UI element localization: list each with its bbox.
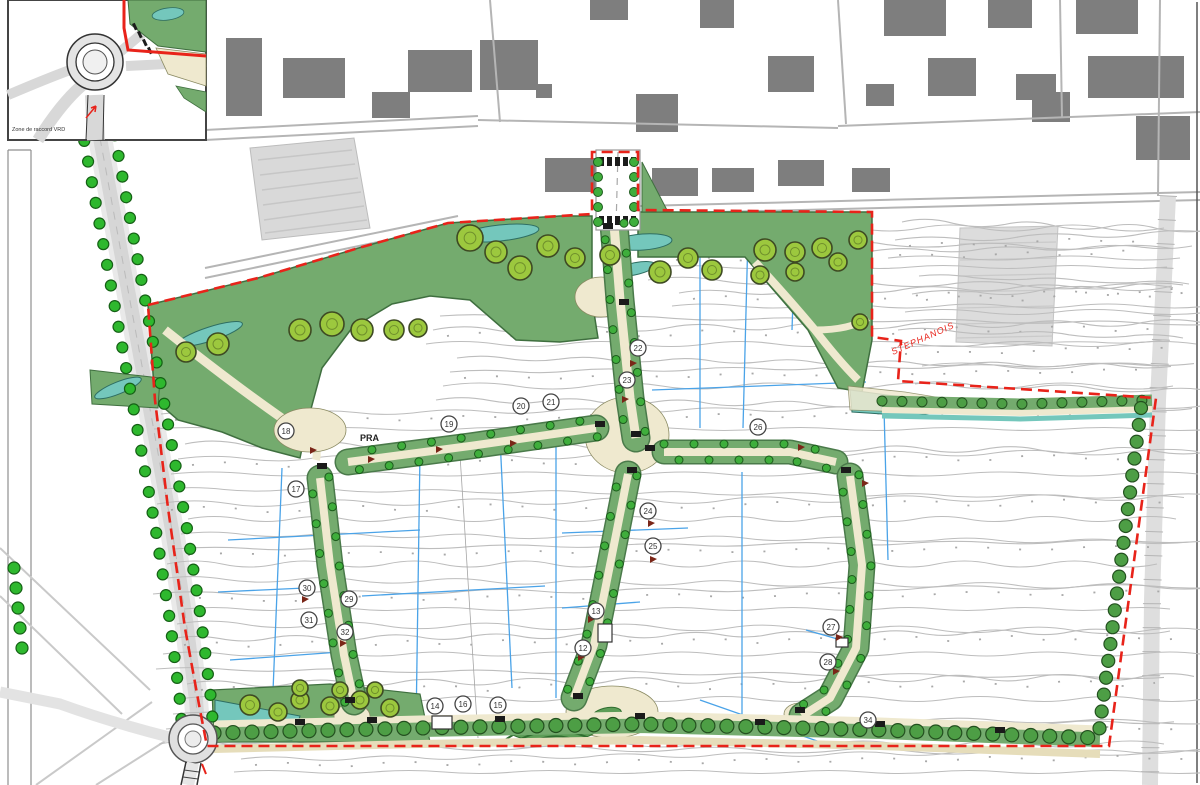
tree-symbol — [94, 218, 105, 229]
tree-symbol — [530, 719, 544, 733]
tree-symbol — [157, 569, 168, 580]
tree-symbol — [321, 723, 335, 737]
tree-symbol — [10, 582, 22, 594]
tree-symbol — [606, 512, 614, 520]
tree-symbol — [1097, 688, 1110, 701]
arrow-symbol — [862, 480, 869, 487]
road-mark — [603, 223, 613, 229]
tree-symbol — [620, 219, 628, 227]
tree-symbol — [445, 454, 453, 462]
building — [1076, 0, 1138, 34]
tree-symbol — [1037, 398, 1047, 408]
inset-caption: Zone de raccord VRD — [12, 127, 65, 133]
canopy-tree — [600, 245, 620, 265]
tree-symbol — [504, 446, 512, 454]
drain-line — [743, 234, 748, 428]
tree-symbol — [132, 254, 143, 265]
plan-marker: 26 — [750, 419, 766, 435]
building — [884, 0, 946, 36]
contour-line — [450, 363, 1194, 372]
building — [536, 84, 552, 98]
tree-symbol — [1132, 418, 1145, 431]
green-band-east — [638, 212, 872, 392]
tree-symbol — [117, 342, 128, 353]
tree-symbol — [855, 471, 863, 479]
plan-marker-label: 27 — [827, 623, 836, 632]
tree-symbol — [16, 642, 28, 654]
building — [778, 160, 824, 186]
tree-symbol — [675, 456, 683, 464]
tree-symbol — [1117, 536, 1130, 549]
tree-symbol — [332, 533, 340, 541]
plan-marker-label: 32 — [341, 628, 350, 637]
tree-symbol — [568, 718, 582, 732]
tree-symbol — [1126, 469, 1139, 482]
plan-marker-label: 24 — [644, 507, 653, 516]
bus-shelter — [598, 624, 612, 642]
building — [866, 84, 894, 106]
detail-inset: Zone de raccord VRD — [8, 0, 206, 140]
tree-symbol — [594, 203, 603, 212]
tree-symbol — [627, 309, 635, 317]
tree-symbol — [159, 398, 170, 409]
tree-symbol — [660, 440, 668, 448]
contour-line — [156, 668, 1164, 679]
tree-symbol — [644, 717, 658, 731]
tree-symbol — [140, 466, 151, 477]
road-mark — [875, 721, 885, 727]
tree-symbol — [121, 192, 132, 203]
contour-line — [234, 771, 1200, 774]
road-mark — [295, 719, 305, 725]
building — [700, 0, 734, 28]
tree-symbol — [1124, 486, 1137, 499]
tree-symbol — [487, 430, 495, 438]
tree-symbol — [1005, 728, 1019, 742]
tree-symbol — [720, 719, 734, 733]
tree-symbol — [977, 398, 987, 408]
plan-marker: 34 — [860, 712, 876, 728]
plan-marker-label: 26 — [754, 423, 763, 432]
tree-symbol — [863, 622, 871, 630]
canopy-tree — [678, 248, 698, 268]
plan-marker: 14 — [427, 698, 443, 714]
tree-symbol — [705, 456, 713, 464]
tree-symbol — [863, 530, 871, 538]
plan-marker: 21 — [543, 394, 559, 410]
bus-shelter — [432, 716, 452, 729]
canopy-tree — [289, 319, 311, 341]
canopy-tree — [367, 682, 383, 698]
arrow-symbol — [302, 596, 309, 603]
tree-symbol — [415, 458, 423, 466]
tree-symbol — [14, 622, 26, 634]
tree-symbol — [1128, 452, 1141, 465]
street-line — [640, 192, 1200, 206]
road-mark — [367, 717, 377, 723]
tree-symbol — [859, 501, 867, 509]
canopy-tree — [207, 333, 229, 355]
tree-symbol — [154, 548, 165, 559]
tree-symbol — [621, 531, 629, 539]
tree-symbol — [609, 589, 617, 597]
tree-symbol — [1097, 397, 1107, 407]
tree-symbol — [355, 680, 363, 688]
plan-marker: 29 — [341, 591, 357, 607]
tree-symbol — [113, 150, 124, 161]
street-line — [838, 0, 846, 124]
tree-symbol — [121, 363, 132, 374]
tree-symbol — [622, 249, 630, 257]
tree-symbol — [117, 171, 128, 182]
tree-symbol — [967, 726, 981, 740]
tree-symbol — [128, 404, 139, 415]
tree-symbol — [109, 301, 120, 312]
road-mark — [795, 707, 805, 713]
plan-marker: 28 — [820, 654, 836, 670]
canopy-tree — [649, 261, 671, 283]
slope-ticks — [255, 756, 1199, 767]
tree-symbol — [1077, 397, 1087, 407]
road-hatch — [1144, 555, 1162, 556]
tree-symbol — [606, 717, 620, 731]
plan-marker-label: 28 — [824, 658, 833, 667]
tree-symbol — [324, 609, 332, 617]
tree-symbol — [147, 507, 158, 518]
tree-symbol — [1043, 729, 1057, 743]
tree-symbol — [612, 355, 620, 363]
plan-marker: 13 — [588, 603, 604, 619]
contour-line — [167, 561, 1157, 567]
arrow-symbol — [648, 520, 655, 527]
tree-symbol — [811, 445, 819, 453]
tree-symbol — [857, 654, 865, 662]
tree-symbol — [454, 720, 468, 734]
tree-symbol — [596, 649, 604, 657]
tree-symbol — [822, 707, 830, 715]
tree-symbol — [283, 724, 297, 738]
plan-marker: 12 — [575, 640, 591, 656]
tree-symbol — [587, 718, 601, 732]
tree-symbol — [606, 296, 614, 304]
tree-symbol — [1095, 705, 1108, 718]
tree-symbol — [682, 718, 696, 732]
tree-symbol — [735, 456, 743, 464]
tree-symbol — [335, 669, 343, 677]
tree-symbol — [690, 440, 698, 448]
canopy-tree — [852, 314, 868, 330]
tree-symbol — [98, 239, 109, 250]
road-mark — [345, 697, 355, 703]
building — [636, 94, 678, 132]
tree-symbol — [328, 503, 336, 511]
tree-symbol — [793, 458, 801, 466]
canopy-tree — [269, 703, 287, 721]
road-name-label: STEPHANOIS — [890, 320, 956, 357]
tree-symbol — [1110, 587, 1123, 600]
tree-symbol — [427, 438, 435, 446]
tree-symbol — [164, 610, 175, 621]
tree-symbol — [796, 721, 810, 735]
road-mark — [755, 719, 765, 725]
building — [590, 0, 628, 20]
plan-marker: 20 — [513, 398, 529, 414]
canopy-tree — [785, 242, 805, 262]
tree-symbol — [917, 397, 927, 407]
plan-marker-label: 34 — [864, 716, 873, 725]
building — [1136, 116, 1190, 160]
tree-symbol — [1024, 728, 1038, 742]
drain-line — [272, 468, 282, 716]
tree-symbol — [1113, 570, 1126, 583]
tree-symbol — [132, 424, 143, 435]
tree-symbol — [160, 590, 171, 601]
road-hatch — [1146, 507, 1164, 508]
canopy-tree — [381, 699, 399, 717]
tree-symbol — [136, 274, 147, 285]
tree-symbol — [1062, 730, 1076, 744]
area-label: PRA — [360, 433, 380, 443]
tree-symbol — [625, 717, 639, 731]
tree-symbol — [576, 417, 584, 425]
tree-symbol — [929, 725, 943, 739]
tree-symbol — [877, 396, 887, 406]
plan-marker-label: 12 — [579, 644, 588, 653]
road-mark — [635, 713, 645, 719]
plan-marker: 27 — [823, 619, 839, 635]
building — [372, 92, 410, 118]
plan-marker: 18 — [278, 423, 294, 439]
tree-symbol — [843, 518, 851, 526]
canopy-tree — [351, 319, 373, 341]
tree-symbol — [194, 606, 205, 617]
tree-symbol — [325, 473, 333, 481]
building — [712, 168, 754, 192]
canopy-tree — [457, 225, 483, 251]
tree-symbol — [170, 460, 181, 471]
tree-symbol — [765, 456, 773, 464]
plan-marker: 30 — [299, 580, 315, 596]
road-hatch — [1147, 459, 1165, 460]
tree-symbol — [113, 321, 124, 332]
tree-symbol — [609, 326, 617, 334]
tree-symbol — [166, 631, 177, 642]
building — [226, 38, 262, 116]
tree-symbol — [1115, 553, 1128, 566]
tree-symbol — [105, 280, 116, 291]
plan-marker-label: 20 — [517, 402, 526, 411]
tree-symbol — [226, 726, 240, 740]
tree-symbol — [1104, 638, 1117, 651]
tree-symbol — [316, 550, 324, 558]
tree-symbol — [416, 721, 430, 735]
tree-symbol — [457, 434, 465, 442]
tree-symbol — [136, 445, 147, 456]
plan-marker: 25 — [645, 538, 661, 554]
plan-marker: 31 — [301, 612, 317, 628]
tree-symbol — [937, 397, 947, 407]
canopy-tree — [240, 695, 260, 715]
canopy-tree — [565, 248, 585, 268]
tree-symbol — [200, 648, 211, 659]
tree-symbol — [320, 580, 328, 588]
tree-symbol — [86, 177, 97, 188]
tree-symbol — [822, 464, 830, 472]
canopy-tree — [829, 253, 847, 271]
plan-marker-label: 23 — [623, 376, 632, 385]
drain-line — [416, 452, 420, 728]
plan-marker: 15 — [490, 697, 506, 713]
drain-line — [218, 588, 305, 592]
plan-marker-label: 25 — [649, 542, 658, 551]
tree-symbol — [264, 725, 278, 739]
plan-marker-label: 29 — [345, 595, 354, 604]
road-mark — [317, 463, 327, 469]
road-mark — [495, 716, 505, 722]
tree-symbol — [701, 719, 715, 733]
tree-symbol — [302, 724, 316, 738]
tree-symbol — [663, 718, 677, 732]
tree-symbol — [997, 399, 1007, 409]
tree-symbol — [820, 686, 828, 694]
site-plan-page: STEPHANOIS PRA 1817192021222324252627282… — [0, 0, 1200, 785]
tree-symbol — [633, 368, 641, 376]
tree-symbol — [128, 233, 139, 244]
tree-symbol — [188, 564, 199, 575]
tree-symbol — [897, 396, 907, 406]
tree-symbol — [166, 440, 177, 451]
canopy-tree — [321, 697, 339, 715]
tree-symbol — [625, 279, 633, 287]
road-west — [100, 138, 198, 726]
tree-symbol — [1057, 398, 1067, 408]
tree-symbol — [867, 562, 875, 570]
tree-symbol — [1135, 402, 1148, 415]
tree-symbol — [185, 543, 196, 554]
building — [988, 0, 1032, 28]
tree-symbol — [151, 527, 162, 538]
plan-marker: 19 — [441, 416, 457, 432]
tree-symbol — [197, 627, 208, 638]
tree-symbol — [205, 689, 216, 700]
tree-symbol — [1093, 722, 1106, 735]
tree-symbol — [83, 156, 94, 167]
road-mark — [995, 727, 1005, 733]
building — [652, 168, 698, 196]
canopy-tree — [176, 342, 196, 362]
tree-symbol — [309, 490, 317, 498]
tree-symbol — [594, 188, 603, 197]
road-hatch — [1144, 579, 1162, 580]
canopy-tree — [754, 239, 776, 261]
tree-symbol — [612, 483, 620, 491]
canopy-tree — [292, 680, 308, 696]
plan-marker-label: 19 — [445, 420, 454, 429]
tree-symbol — [1081, 731, 1095, 745]
tree-symbol — [102, 259, 113, 270]
tree-symbol — [163, 419, 174, 430]
plan-marker: 16 — [455, 696, 471, 712]
tree-symbol — [891, 724, 905, 738]
tree-symbol — [750, 440, 758, 448]
tree-symbol — [815, 722, 829, 736]
tree-symbol — [516, 426, 524, 434]
tree-symbol — [474, 450, 482, 458]
contour-line — [160, 577, 1200, 590]
tree-symbol — [846, 605, 854, 613]
tree-symbol — [839, 488, 847, 496]
tree-symbol — [546, 421, 554, 429]
canopy-tree — [849, 231, 867, 249]
plan-marker-label: 13 — [592, 607, 601, 616]
tree-symbol — [178, 502, 189, 513]
tree-symbol — [957, 398, 967, 408]
tree-symbol — [1106, 621, 1119, 634]
tree-symbol — [948, 726, 962, 740]
tree-symbol — [720, 440, 728, 448]
tree-symbol — [848, 576, 856, 584]
canopy-tree — [786, 263, 804, 281]
tree-symbol — [564, 437, 572, 445]
canopy-tree — [751, 266, 769, 284]
tree-symbol — [601, 236, 609, 244]
road-hatch — [1145, 531, 1163, 532]
road-hatch — [1146, 483, 1164, 484]
tree-symbol — [473, 720, 487, 734]
tree-symbol — [1100, 671, 1113, 684]
tree-symbol — [398, 442, 406, 450]
building — [283, 58, 345, 98]
site-plan-svg: STEPHANOIS PRA 1817192021222324252627282… — [0, 0, 1200, 785]
tree-symbol — [843, 681, 851, 689]
tree-symbol — [172, 672, 183, 683]
tree-symbol — [312, 520, 320, 528]
tree-symbol — [329, 639, 337, 647]
building — [852, 168, 890, 192]
canopy-tree — [537, 235, 559, 257]
tree-symbol — [385, 462, 393, 470]
tree-symbol — [124, 383, 135, 394]
contour-line — [655, 266, 1167, 269]
plan-marker-label: 14 — [431, 702, 440, 711]
plan-marker-label: 21 — [547, 398, 556, 407]
tree-symbol — [586, 678, 594, 686]
tree-symbol — [340, 723, 354, 737]
plan-marker: 17 — [288, 481, 304, 497]
tree-symbol — [174, 481, 185, 492]
tree-symbol — [865, 592, 873, 600]
tree-symbol — [601, 542, 609, 550]
tree-symbol — [910, 724, 924, 738]
plan-marker-label: 31 — [305, 616, 314, 625]
tree-symbol — [534, 441, 542, 449]
tree-symbol — [147, 336, 158, 347]
tree-symbol — [355, 466, 363, 474]
tree-symbol — [847, 548, 855, 556]
road-mark — [573, 693, 583, 699]
tree-symbol — [739, 720, 753, 734]
plan-marker-label: 15 — [494, 701, 503, 710]
road-mark — [619, 299, 629, 305]
tree-symbol — [604, 266, 612, 274]
building — [480, 40, 538, 90]
tree-symbol — [1017, 399, 1027, 409]
canopy-tree — [320, 312, 344, 336]
tree-symbol — [1130, 435, 1143, 448]
tree-symbol — [1119, 520, 1132, 533]
tree-symbol — [564, 685, 572, 693]
canopy-tree — [812, 238, 832, 258]
